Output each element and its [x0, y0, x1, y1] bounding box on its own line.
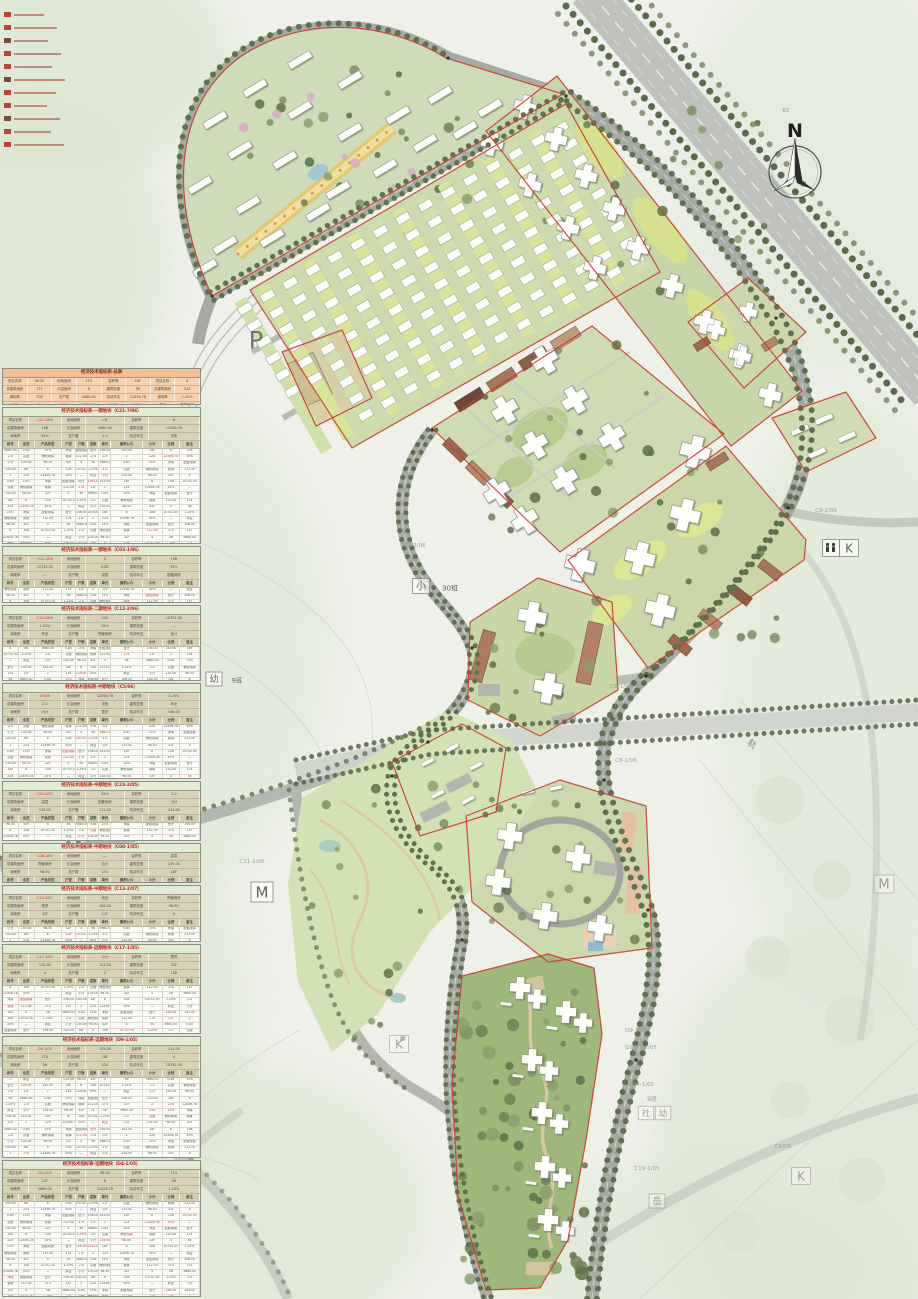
tree — [565, 885, 574, 894]
tree — [318, 112, 329, 123]
svg-text:K: K — [845, 541, 854, 555]
tree — [528, 1248, 539, 1259]
tree — [385, 989, 393, 997]
tree — [489, 797, 495, 803]
tree — [462, 194, 472, 204]
tree — [404, 136, 409, 141]
tree — [518, 912, 527, 921]
tree — [734, 235, 742, 243]
tree — [547, 1080, 559, 1092]
plot-code-label: C8-1/06 — [610, 684, 632, 690]
legend-row — [4, 125, 74, 138]
svg-text:幼: 幼 — [659, 1108, 668, 1119]
map-label: N — [787, 120, 803, 142]
map-label: 30班 — [442, 584, 458, 593]
tree — [517, 809, 522, 814]
svg-text:M: M — [878, 878, 889, 893]
tree — [717, 500, 722, 505]
tree — [377, 1022, 383, 1028]
tree — [255, 99, 265, 109]
plot-code-label: C9-2/06 — [815, 508, 837, 514]
tree — [305, 157, 315, 167]
tree — [493, 902, 504, 913]
tree — [511, 803, 517, 809]
masterplan-map: NPMMKKK小30班幼9班社幼9班岳轨C21-1/06C12-2/06C9-2… — [0, 0, 918, 1299]
plot-code-label: D4-1/05 — [632, 1082, 655, 1088]
tree — [576, 429, 583, 436]
legend-swatch — [4, 142, 11, 147]
tree — [570, 1256, 582, 1268]
svg-text:M: M — [256, 883, 269, 901]
svg-text:9班: 9班 — [232, 675, 243, 684]
tree — [657, 499, 664, 506]
plot-code-label: C12-2/06 — [400, 543, 426, 549]
tree — [472, 1000, 482, 1010]
legend-swatch — [4, 64, 11, 69]
plot-code-label: C19-1/05 — [634, 1166, 660, 1172]
legend-text-line — [14, 66, 52, 68]
legend-row — [4, 138, 74, 151]
tree — [353, 894, 358, 899]
tree — [698, 545, 708, 555]
tree — [473, 781, 480, 788]
legend-swatch — [4, 129, 11, 134]
tree — [560, 1041, 566, 1047]
legend-text-line — [14, 53, 61, 55]
map-label: K — [823, 540, 859, 557]
tree — [505, 1186, 510, 1191]
tree — [513, 689, 519, 695]
svg-text:30班: 30班 — [442, 584, 458, 593]
tree — [488, 513, 495, 520]
tree — [617, 897, 624, 904]
tree — [715, 161, 724, 170]
tree — [563, 1104, 570, 1111]
tree — [644, 391, 649, 396]
map-legend — [4, 8, 74, 151]
tree — [514, 1141, 524, 1151]
legend-row — [4, 112, 74, 125]
legend-row — [4, 21, 74, 34]
tree — [530, 492, 541, 503]
tree — [477, 1131, 486, 1140]
map-label: 岳 — [649, 1194, 665, 1208]
svg-text:N: N — [787, 120, 803, 142]
legend-row — [4, 8, 74, 21]
tree — [670, 156, 677, 163]
tree — [579, 1207, 590, 1218]
legend-text-line — [14, 79, 65, 81]
tree — [324, 172, 332, 180]
tree — [433, 842, 442, 851]
tree — [479, 1107, 487, 1115]
tree — [580, 1037, 587, 1044]
tree — [385, 90, 391, 96]
legend-swatch — [4, 90, 11, 95]
legend-row — [4, 47, 74, 60]
tree — [737, 633, 745, 641]
legend-swatch — [4, 38, 11, 43]
tree — [571, 989, 579, 997]
tree — [513, 1161, 523, 1171]
legend-swatch — [4, 51, 11, 56]
map-label: 幼 — [206, 672, 222, 686]
tree — [552, 845, 561, 854]
tree — [398, 128, 405, 135]
tree — [505, 1062, 513, 1070]
tree — [322, 800, 331, 809]
legend-text-line — [14, 27, 57, 29]
tree — [761, 223, 768, 230]
tree — [267, 119, 274, 126]
tree — [335, 847, 340, 852]
legend-row — [4, 73, 74, 86]
map-label: 小 — [413, 579, 430, 594]
tree — [427, 781, 438, 792]
tree — [393, 961, 403, 971]
legend-text-line — [14, 144, 64, 146]
legend-row — [4, 34, 74, 47]
plot-code-label: C8-2/06 — [615, 758, 637, 764]
legend-text-line — [14, 118, 60, 120]
map-label: 9班 — [232, 675, 243, 684]
tree — [396, 71, 402, 77]
tree — [711, 527, 720, 536]
tree — [507, 1019, 520, 1032]
tree — [747, 630, 756, 639]
tree — [582, 1162, 588, 1168]
tree — [493, 1079, 499, 1085]
legend-row — [4, 60, 74, 73]
tree — [460, 1256, 467, 1263]
legend-swatch — [4, 116, 11, 121]
tree — [439, 819, 448, 828]
tree — [336, 863, 343, 870]
tree — [334, 969, 343, 978]
map-label: P — [249, 327, 263, 355]
tree — [500, 1133, 509, 1142]
tree — [539, 631, 544, 636]
legend-swatch — [4, 103, 11, 108]
map-label: K — [792, 1168, 811, 1185]
masterplan-canvas: { "page": {"type": "residential-district… — [0, 0, 918, 1299]
tree — [554, 1095, 560, 1101]
tree — [350, 158, 360, 168]
tree — [606, 458, 614, 466]
tree — [272, 110, 281, 119]
legend-row — [4, 99, 74, 112]
tree — [576, 1076, 585, 1085]
tree — [486, 1128, 499, 1141]
legend-swatch — [4, 25, 11, 30]
tree — [584, 661, 595, 672]
map-label: M — [874, 875, 894, 893]
tree — [591, 486, 601, 496]
tree — [455, 116, 460, 121]
svg-text:幼: 幼 — [209, 673, 218, 685]
tree — [547, 415, 554, 422]
svg-text:K: K — [395, 1037, 404, 1051]
legend-text-line — [14, 105, 47, 107]
tree — [307, 93, 315, 101]
tree — [346, 112, 352, 118]
tree — [279, 96, 286, 103]
plot-code-label: B2 — [782, 108, 789, 114]
plot-code-label: C6/05 — [775, 1144, 792, 1150]
tree — [239, 122, 249, 132]
tree — [482, 1045, 496, 1059]
svg-text:P: P — [249, 327, 263, 355]
legend-text-line — [14, 40, 48, 42]
tree — [375, 152, 381, 158]
tree — [583, 121, 591, 129]
tree — [499, 1112, 509, 1122]
tree — [464, 1273, 475, 1284]
map-label: 幼 — [655, 1106, 671, 1120]
tree — [247, 152, 254, 159]
svg-text:小: 小 — [416, 581, 426, 593]
tree — [304, 118, 313, 127]
tree — [770, 633, 780, 643]
legend-row — [4, 86, 74, 99]
tree — [505, 435, 513, 443]
tree — [551, 800, 559, 808]
plot-code-label: C21-1/06 — [239, 859, 265, 865]
map-label: 社 — [638, 1106, 654, 1120]
tree — [472, 1212, 485, 1225]
svg-text:9班: 9班 — [647, 1095, 657, 1103]
legend-text-line — [14, 92, 56, 94]
tree — [418, 908, 423, 913]
legend-text-line — [14, 14, 44, 16]
tree — [583, 896, 591, 904]
legend-text-line — [14, 131, 51, 133]
plot-code-label: D9/D9-2/05 — [625, 1045, 657, 1051]
tree — [475, 1025, 487, 1037]
tree — [444, 122, 455, 133]
tree — [542, 1250, 551, 1259]
tree — [687, 106, 697, 116]
svg-text:岳: 岳 — [652, 1195, 661, 1207]
tree — [575, 802, 581, 808]
tree — [341, 154, 347, 160]
tree — [546, 890, 554, 898]
tree — [507, 1115, 519, 1127]
plot-code-label: D9-1/05 — [625, 1028, 648, 1034]
legend-swatch — [4, 12, 11, 17]
tree — [698, 126, 706, 134]
tree — [372, 802, 377, 807]
tree — [642, 445, 653, 456]
tree — [459, 1077, 464, 1082]
svg-text:社: 社 — [642, 1108, 651, 1119]
tree — [489, 661, 496, 668]
tree — [504, 1094, 515, 1105]
svg-text:K: K — [797, 1169, 806, 1183]
map-label: M — [251, 882, 273, 902]
tree — [371, 784, 381, 794]
tree — [536, 1197, 543, 1204]
tree — [489, 644, 498, 653]
tree — [507, 527, 514, 534]
tree — [709, 628, 719, 638]
tree — [630, 934, 640, 944]
tree — [686, 578, 692, 584]
tree — [774, 615, 780, 621]
tree — [368, 1018, 375, 1025]
tree — [579, 453, 586, 460]
map-label: 9班 — [647, 1095, 657, 1103]
tree — [543, 1019, 549, 1025]
tree — [539, 1186, 552, 1199]
legend-swatch — [4, 77, 11, 82]
tree — [492, 1185, 499, 1192]
tree — [301, 199, 308, 206]
map-label: K — [390, 1036, 409, 1053]
tree — [667, 522, 675, 530]
tree — [384, 968, 394, 978]
